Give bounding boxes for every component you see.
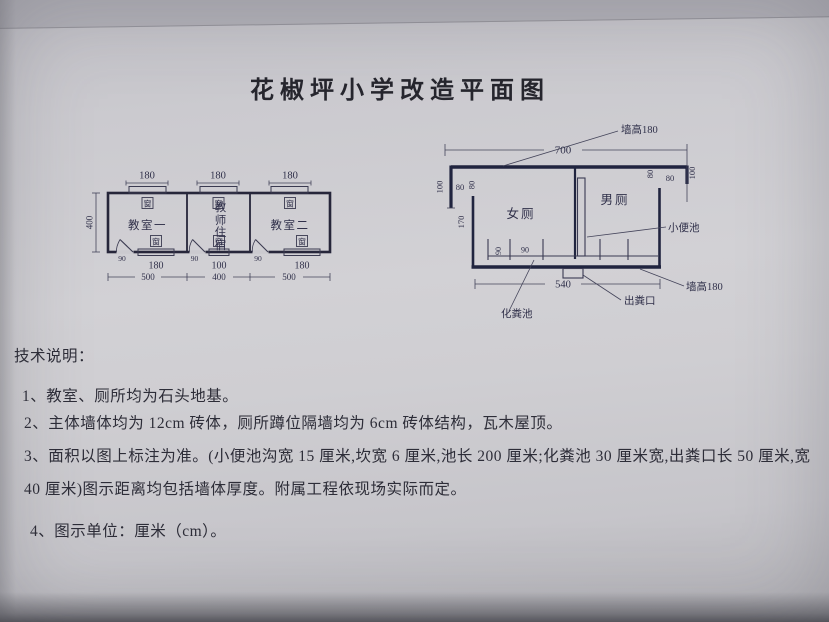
dim-room-width-3: 500 <box>282 272 296 282</box>
room-label-men-toilet: 男厕 <box>600 193 629 207</box>
dim-right-80b: 80 <box>666 173 675 183</box>
dim-stall-b: 90 <box>521 246 529 255</box>
paper-bottom-shadow <box>0 592 829 622</box>
dim-bottom-total: 540 <box>555 280 571 291</box>
dim-stall-a: 90 <box>494 247 503 255</box>
dim-total-width: 700 <box>555 145 572 157</box>
dim-door-3: 90 <box>254 254 262 263</box>
dim-door-1: 90 <box>118 254 126 263</box>
room-label-women-toilet: 女厕 <box>506 206 535 221</box>
window-char-top-3: 窗 <box>286 198 294 208</box>
wall-height-label-top: 墙高180 <box>621 123 658 136</box>
dim-right-100: 100 <box>687 167 697 180</box>
dim-door-2: 90 <box>191 254 199 263</box>
room-label-classroom-2: 教室二 <box>271 218 310 232</box>
toilet-walls <box>451 166 687 269</box>
note-item-4: 4、图示单位：厘米（cm）。 <box>30 515 226 548</box>
dim-window-1: 180 <box>149 261 164 272</box>
dim-top-2: 180 <box>210 171 226 182</box>
dim-left-height: 400 <box>85 215 95 229</box>
classroom-door-symbols <box>116 240 268 253</box>
wall-height-label-bottom: 墙高180 <box>686 280 723 293</box>
dim-window-3: 180 <box>295 261 310 272</box>
window-char-bottom-1: 窗 <box>152 236 160 246</box>
dim-right-80a: 80 <box>645 170 655 179</box>
dim-room-width-1: 500 <box>141 272 155 282</box>
room-label-classroom-1: 教室一 <box>128 218 167 232</box>
septic-tank-label: 化粪池 <box>501 307 533 320</box>
room-label-teacher-housing: 教师住宿 <box>213 202 228 252</box>
dim-left-80a: 80 <box>456 182 465 192</box>
drawing-title: 花椒坪小学改造平面图 <box>0 70 800 105</box>
dim-left-80b: 80 <box>467 181 477 190</box>
photographed-drawing-sheet: 花椒坪小学改造平面图 <box>0 0 829 622</box>
dim-room-width-2: 400 <box>212 272 226 282</box>
note-item-3: 3、面积以图上标注为准。(小便池沟宽 15 厘米,坎宽 6 厘米,池长 200 … <box>24 440 824 506</box>
note-item-2: 2、主体墙体均为 12cm 砖体，厕所蹲位隔墙均为 6cm 砖体结构，瓦木屋顶。 <box>24 407 562 440</box>
dim-window-2: 100 <box>212 261 227 272</box>
dim-left-170: 170 <box>456 216 466 229</box>
notes-heading: 技术说明： <box>14 340 94 373</box>
dim-top-3: 180 <box>282 171 298 182</box>
outlet-label: 出粪口 <box>624 294 656 307</box>
urinal-label: 小便池 <box>668 221 700 234</box>
window-char-top-1: 窗 <box>144 198 152 208</box>
classroom-floor-plan: 180 180 180 400 窗 窗 窗 窗 窗 窗 教室一 教室二 90 9… <box>72 158 352 308</box>
dim-left-100: 100 <box>435 181 445 194</box>
toilet-fixtures <box>488 178 658 278</box>
paper-top-edge <box>0 0 829 29</box>
dim-top-1: 180 <box>139 171 155 182</box>
window-char-bottom-3: 窗 <box>298 236 306 246</box>
toilet-floor-plan: 700 墙高180 100 80 80 170 80 80 100 女厕 男厕 … <box>415 110 795 330</box>
